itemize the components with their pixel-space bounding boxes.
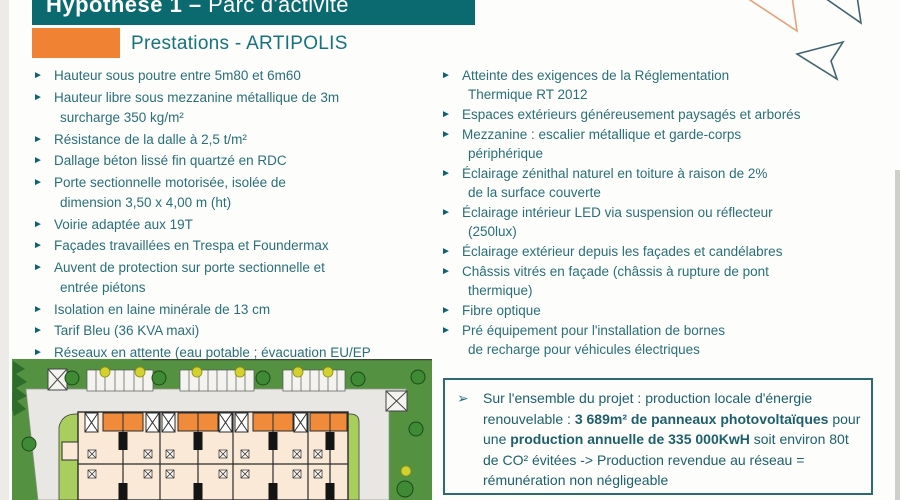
bullet-item: ►Éclairage extérieur depuis les façades … — [441, 242, 871, 261]
bullet-text-line: (250lux) — [462, 222, 871, 241]
bullet-text-line: Atteinte des exigences de la Réglementat… — [462, 66, 871, 85]
bullet-item: ►Résistance de la dalle à 2,5 t/m² — [33, 130, 435, 151]
triangle-bullet-icon: ► — [33, 151, 54, 172]
bullet-item: ►Tarif Bleu (36 KVA maxi) — [33, 321, 435, 342]
bullet-item: ►Éclairage zénithal naturel en toiture à… — [441, 164, 871, 202]
bullet-item: ►Fibre optique — [441, 301, 871, 320]
triangle-bullet-icon: ► — [441, 125, 462, 144]
left-edge-strip — [0, 0, 9, 500]
triangle-bullet-icon: ► — [33, 66, 54, 87]
bullet-item: ►Éclairage intérieur LED via suspension … — [441, 203, 871, 241]
bullet-text-line: Hauteur sous poutre entre 5m80 et 6m60 — [54, 66, 435, 87]
bullet-text-line: Éclairage zénithal naturel en toiture à … — [462, 164, 871, 183]
right-edge-strip — [895, 170, 900, 500]
callout-segment-bold: 3 689m² de panneaux photovoltaïques — [575, 411, 829, 427]
callout-text: Sur l'ensemble du projet : production lo… — [483, 388, 863, 493]
bullet-text-line: Éclairage intérieur LED via suspension o… — [462, 203, 871, 222]
orange-chevron-icon — [744, 0, 797, 31]
bullet-item: ►Façades travaillées en Trespa et Founde… — [33, 236, 435, 257]
page-title: Hypothèse 1 – Parc d'activité — [32, 0, 475, 18]
bullet-text-line: Thermique RT 2012 — [462, 85, 871, 104]
triangle-bullet-icon: ► — [441, 301, 462, 320]
title-regular-part: Parc d'activité — [202, 0, 349, 17]
building-notch — [62, 442, 78, 460]
bullet-text-line: Résistance de la dalle à 2,5 t/m² — [54, 130, 435, 151]
solar-callout-box: ➢ Sur l'ensemble du projet : production … — [443, 378, 873, 495]
triangle-bullet-icon: ► — [33, 88, 54, 109]
bullet-text-line: de la surface couverte — [462, 183, 871, 202]
triangle-bullet-icon: ► — [441, 105, 462, 124]
callout-segment-bold: production annuelle de 335 000KwH — [510, 431, 750, 447]
teal-chevron-icon — [822, 0, 861, 23]
site-plan-svg — [12, 359, 432, 500]
orange-accent-block — [32, 28, 120, 58]
bullet-item: ►Auvent de protection sur porte sectionn… — [33, 258, 435, 299]
bullet-text-line: Isolation en laine minérale de 13 cm — [54, 300, 435, 321]
bullet-text-line: Porte sectionnelle motorisée, isolée de — [54, 173, 435, 194]
bullet-text-line: Pré équipement pour l'installation de bo… — [462, 321, 871, 340]
site-plan-image — [12, 359, 432, 500]
bullet-text-line: surcharge 350 kg/m² — [54, 108, 435, 129]
bullet-text-line: Châssis vitrés en façade (châssis à rupt… — [462, 262, 871, 281]
bullet-text-line: Mezzanine : escalier métallique et garde… — [462, 125, 871, 144]
bullet-item: ►Espaces extérieurs généreusement paysag… — [441, 105, 871, 124]
bullet-text-line: périphérique — [462, 144, 871, 163]
bullet-text-line: Voirie adaptée aux 19T — [54, 215, 435, 236]
left-bullet-column: ►Hauteur sous poutre entre 5m80 et 6m60 … — [33, 66, 435, 385]
bullet-text-line: dimension 3,50 x 4,00 m (ht) — [54, 193, 435, 214]
bullet-text-line: Façades travaillées en Trespa et Founder… — [54, 236, 435, 257]
bullet-text-line: Fibre optique — [462, 301, 871, 320]
bullet-text-line: Éclairage extérieur depuis les façades e… — [462, 242, 871, 261]
title-bold-part: Hypothèse 1 – — [46, 0, 202, 17]
bullet-item: ►Voirie adaptée aux 19T — [33, 215, 435, 236]
bullet-text-line: thermique) — [462, 281, 871, 300]
bullet-item: ►Châssis vitrés en façade (châssis à rup… — [441, 262, 871, 300]
title-banner: Hypothèse 1 – Parc d'activité — [32, 0, 475, 25]
bullet-item: ►Mezzanine : escalier métallique et gard… — [441, 125, 871, 163]
triangle-bullet-icon: ► — [33, 321, 54, 342]
triangle-bullet-icon: ► — [33, 130, 54, 151]
triangle-bullet-icon: ► — [441, 242, 462, 261]
triangle-bullet-icon: ► — [33, 215, 54, 236]
subtitle: Prestations - ARTIPOLIS — [131, 33, 348, 55]
bullet-item: ►Isolation en laine minérale de 13 cm — [33, 300, 435, 321]
bullet-item: ►Hauteur libre sous mezzanine métallique… — [33, 88, 435, 129]
bullet-text-line: de recharge pour véhicules électriques — [462, 340, 871, 359]
bullet-text-line: Auvent de protection sur porte sectionne… — [54, 258, 435, 279]
triangle-bullet-icon: ► — [33, 173, 54, 194]
triangle-bullet-icon: ► — [441, 203, 462, 222]
bullet-text-line: Espaces extérieurs généreusement paysagé… — [462, 105, 871, 124]
bullet-text-line: Tarif Bleu (36 KVA maxi) — [54, 321, 435, 342]
triangle-bullet-icon: ► — [33, 236, 54, 257]
right-bullet-column: ►Atteinte des exigences de la Réglementa… — [441, 66, 871, 360]
triangle-bullet-icon: ► — [441, 262, 462, 281]
bullet-text-line: Hauteur libre sous mezzanine métallique … — [54, 88, 435, 109]
bullet-item: ►Porte sectionnelle motorisée, isolée de… — [33, 173, 435, 214]
triangle-bullet-icon: ► — [441, 164, 462, 183]
bullet-text-line: Dallage béton lissé fin quartzé en RDC — [54, 151, 435, 172]
bullet-text-line: entrée piétons — [54, 278, 435, 299]
plan-right-green-strip — [348, 414, 359, 500]
slide: Hypothèse 1 – Parc d'activité Prestation… — [0, 0, 900, 500]
bullet-item: ►Atteinte des exigences de la Réglementa… — [441, 66, 871, 104]
triangle-bullet-icon: ► — [441, 321, 462, 340]
arrow-bullet-icon: ➢ — [457, 388, 483, 493]
triangle-bullet-icon: ► — [33, 300, 54, 321]
bullet-item: ►Pré équipement pour l'installation de b… — [441, 321, 871, 359]
triangle-bullet-icon: ► — [33, 258, 54, 279]
bullet-item: ►Dallage béton lissé fin quartzé en RDC — [33, 151, 435, 172]
bullet-item: ►Hauteur sous poutre entre 5m80 et 6m60 — [33, 66, 435, 87]
triangle-bullet-icon: ► — [441, 66, 462, 85]
